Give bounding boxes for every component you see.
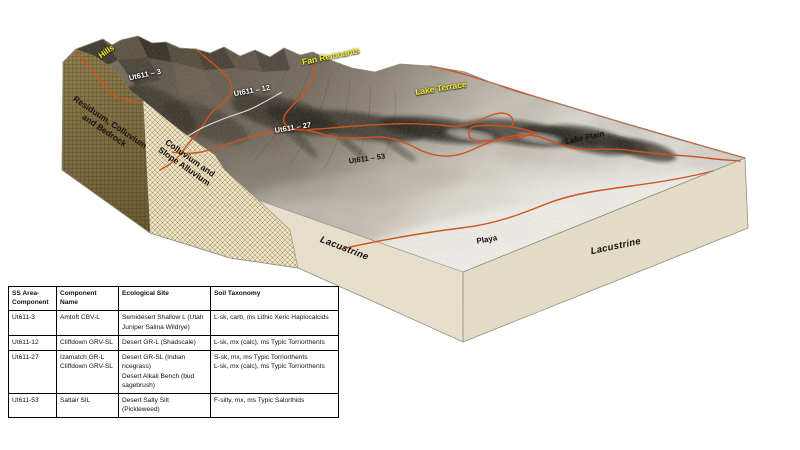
legend-header-row: SS Area- Component Component Name Ecolog…: [9, 287, 339, 311]
cell-area: Ut611-27: [9, 351, 57, 394]
cell-component: Amtoft CBV-L: [57, 311, 119, 335]
cell-component: Saltair SIL: [57, 393, 119, 417]
cell-area: Ut611-12: [9, 335, 57, 350]
legend-row-ut611-3: Ut611-3 Amtoft CBV-L Semidesert Shallow …: [9, 311, 339, 335]
cell-ecosite: Desert GR-SL (Indian ricegrass) Desert A…: [119, 351, 211, 394]
cell-component: Cliffdown GRV-SL: [57, 335, 119, 350]
header-component-name: Component Name: [57, 287, 119, 311]
legend-table: SS Area- Component Component Name Ecolog…: [8, 286, 339, 418]
cell-taxonomy: S-sk, mx, ms Typic Torriorthents L-sk, m…: [211, 351, 339, 394]
header-ecological-site: Ecological Site: [119, 287, 211, 311]
header-soil-taxonomy: Soil Taxonomy: [211, 287, 339, 311]
cell-area: Ut611-3: [9, 311, 57, 335]
cell-taxonomy: F-silty, mx, ms Typic Salorthids: [211, 393, 339, 417]
cell-taxonomy: L-sk, carb, ms Lithic Xeric Haplocalcids: [211, 311, 339, 335]
legend-row-ut611-27: Ut611-27 Izamatch GR-L Cliffdown GRV-SL …: [9, 351, 339, 394]
legend-row-ut611-53: Ut611-53 Saltair SIL Desert Salty Silt (…: [9, 393, 339, 417]
header-ss-area-component: SS Area- Component: [9, 287, 57, 311]
cell-ecosite: Desert Salty Silt (Pickleweed): [119, 393, 211, 417]
soil-survey-block-diagram: Hills Fan Remnants Lake Terrace Lake Pla…: [0, 0, 800, 450]
cell-ecosite: Semidesert Shallow L (Utah Juniper Salin…: [119, 311, 211, 335]
cell-area: Ut611-53: [9, 393, 57, 417]
cell-ecosite: Desert GR-L (Shadscale): [119, 335, 211, 350]
legend-row-ut611-12: Ut611-12 Cliffdown GRV-SL Desert GR-L (S…: [9, 335, 339, 350]
cell-taxonomy: L-sk, mx (calc), ms Typic Torriorthents: [211, 335, 339, 350]
cell-component: Izamatch GR-L Cliffdown GRV-SL: [57, 351, 119, 394]
